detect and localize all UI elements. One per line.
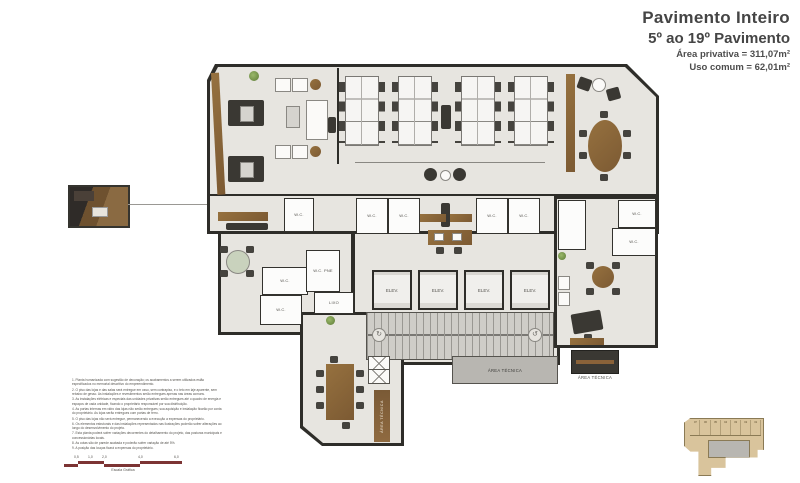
staircase [366, 312, 554, 360]
lower-meeting-chair [330, 356, 338, 363]
room-wc: W.C. [508, 198, 540, 234]
console-right [566, 74, 575, 172]
cabinet-left [226, 223, 268, 230]
meeting-chair [623, 130, 631, 137]
wall-mid-band [210, 194, 656, 196]
round-side-table-1 [310, 79, 321, 90]
meeting-chair [623, 152, 631, 159]
lower-meeting-chair [316, 370, 324, 377]
round-table-chair [612, 262, 620, 269]
elevator-label: ELEV. [478, 288, 490, 293]
key-plan-unit: 02 [741, 420, 751, 435]
round-side-table-2 [310, 146, 321, 157]
credenza-right-bottom [570, 338, 604, 345]
scale-segment [64, 464, 78, 467]
reception-counter-1 [420, 214, 446, 222]
shelf-right-1 [558, 276, 570, 290]
workstation-bench-1 [345, 76, 379, 146]
meeting-table-lower [326, 364, 354, 420]
sofa-4 [292, 145, 308, 159]
stair-arrow-right: ↺ [528, 328, 542, 342]
area-tecnica-center: ÁREA TÉCNICA [452, 356, 558, 384]
elevator-label: ELEV. [524, 288, 536, 293]
room-wc: W.C. [388, 198, 420, 234]
monitor-1 [434, 233, 444, 241]
scale-tick: 0,5 [74, 455, 79, 459]
elevator-1: ELEV. [372, 270, 412, 310]
elevator-3: ELEV. [464, 270, 504, 310]
disclaimer-notes: 1. Planta humanizada com sugestão de dec… [72, 378, 224, 452]
media-unit [306, 100, 328, 140]
key-plan-unit: 07 [690, 420, 700, 435]
wc-label: W.C. [367, 214, 376, 218]
lower-meeting-chair [342, 422, 350, 429]
disclaimer-note: 4. As portas internas em vidro das lojas… [72, 407, 224, 416]
floor-plan-page: Pavimento Inteiro 5º ao 19º Pavimento Ár… [0, 0, 800, 483]
pantry-chair [246, 246, 254, 253]
lower-meeting-chair [316, 386, 324, 393]
area-tecnica-right-label: ÁREA TÉCNICA [560, 375, 630, 380]
scale-tick: 6,0 [174, 455, 179, 459]
scale-tick: 4,0 [138, 455, 143, 459]
room-wc: W.C. [284, 198, 314, 232]
round-table-right-top [592, 78, 606, 92]
sofa-1 [275, 78, 291, 92]
key-plan-unit: 01 [751, 420, 761, 435]
lower-meeting-chair [356, 386, 364, 393]
equipment-shelf [576, 360, 614, 364]
wc-label: W.C. [399, 214, 408, 218]
lower-meeting-chair [356, 402, 364, 409]
round-table-chair [586, 288, 594, 295]
club-chair-1 [424, 168, 437, 181]
wc-pne-label: W.C. PNE [313, 269, 333, 273]
plant-right [558, 252, 566, 260]
key-plan-unit: 03 [731, 420, 741, 435]
wc-label: W.C. [632, 212, 641, 216]
executive-desk-2-top [240, 162, 254, 178]
scale-segment [140, 461, 182, 464]
room-wc: W.C. [612, 228, 656, 256]
round-table-right [592, 266, 614, 288]
lower-meeting-chair [356, 370, 364, 377]
room-wc-pne: W.C. PNE [306, 250, 340, 292]
wc-label: W.C. [276, 308, 285, 312]
disclaimer-note: 8. As cotas são de parede acabada e pode… [72, 441, 224, 445]
key-plan-unit: 06 [700, 420, 710, 435]
pantry-chair [220, 270, 228, 277]
workstation-bench-2 [398, 76, 432, 146]
room-kitchenette [558, 200, 586, 250]
meeting-chair [600, 174, 608, 181]
workstation-bench-3 [461, 76, 495, 146]
pillar-center [441, 105, 451, 129]
area-tecnica-right-box [571, 350, 619, 374]
wc-label: W.C. [280, 279, 289, 283]
room-lixo: LIXO [314, 292, 354, 314]
plant-lower-wing [326, 316, 335, 325]
lounge-table [440, 170, 451, 181]
room-wc: W.C. [260, 295, 302, 325]
wc-label: W.C. [629, 240, 638, 244]
area-tecnica-vertical-label: ÁREA TÉCNICA [380, 400, 384, 433]
elevator-2: ELEV. [418, 270, 458, 310]
disclaimer-note: 3. As instalações elétricas e especiais … [72, 397, 224, 406]
counter-left [218, 212, 268, 221]
key-plan-core [708, 440, 750, 458]
key-plan-units: 07060504030201 [690, 420, 760, 436]
elevator-label: ELEV. [432, 288, 444, 293]
shelf-right-2 [558, 292, 570, 306]
glass-partition-line [355, 162, 545, 163]
scale-tick: 2,0 [102, 455, 107, 459]
disclaimer-note: 6. Os elementos estruturais e das instal… [72, 422, 224, 431]
round-table-chair [586, 262, 594, 269]
meeting-chair [600, 111, 608, 118]
sofa-3 [275, 145, 291, 159]
elevator-label: ELEV. [386, 288, 398, 293]
scale-segment [78, 461, 104, 464]
pantry-chair [246, 270, 254, 277]
scale-segment [104, 464, 140, 467]
disclaimer-note: 2. O piso das lojas e das salas será ent… [72, 388, 224, 397]
area-tecnica-vertical: ÁREA TÉCNICA [374, 390, 390, 442]
round-table-chair [612, 288, 620, 295]
room-wc: W.C. [618, 200, 656, 228]
area-tecnica-label: ÁREA TÉCNICA [488, 368, 522, 373]
workstation-bench-4 [514, 76, 548, 146]
service-shaft-2 [368, 369, 390, 384]
scale-tick: 1,0 [88, 455, 93, 459]
room-wc: W.C. [476, 198, 508, 234]
disclaimer-note: 7. Esta planta poderá sofrer variações d… [72, 431, 224, 440]
disclaimer-note: 1. Planta humanizada com sugestão de dec… [72, 378, 224, 387]
disclaimer-note: 5. O piso das lojas não será entregue, p… [72, 417, 224, 421]
meeting-chair [579, 152, 587, 159]
sofa-2 [292, 78, 308, 92]
key-plan-unit: 04 [721, 420, 731, 435]
wc-label: W.C. [294, 213, 303, 217]
meeting-chair [579, 130, 587, 137]
lower-meeting-chair [316, 402, 324, 409]
club-chair-2 [453, 168, 466, 181]
oval-meeting-table [588, 120, 622, 172]
wc-label: W.C. [519, 214, 528, 218]
reception-chair-1 [436, 247, 444, 254]
monitor-2 [452, 233, 462, 241]
pantry-chair [220, 246, 228, 253]
reception-counter-2 [450, 214, 472, 222]
executive-desk-1-top [240, 106, 254, 122]
stair-arrow-left: ↻ [372, 328, 386, 342]
reception-chair-2 [454, 247, 462, 254]
room-wc: W.C. [262, 267, 308, 295]
scale-label: Escala Gráfica [64, 468, 182, 472]
lixo-label: LIXO [329, 301, 339, 305]
disclaimer-note: 9. A posição das louças ficará a expensa… [72, 446, 224, 450]
key-plan-unit: 05 [711, 420, 721, 435]
elevator-4: ELEV. [510, 270, 550, 310]
room-wc: W.C. [356, 198, 388, 234]
wc-label: W.C. [487, 214, 496, 218]
pillar-media [328, 117, 336, 133]
coffee-table [286, 106, 300, 128]
graphic-scale: 0,51,02,04,06,0 Escala Gráfica [64, 455, 182, 477]
plant-top-left [249, 71, 259, 81]
